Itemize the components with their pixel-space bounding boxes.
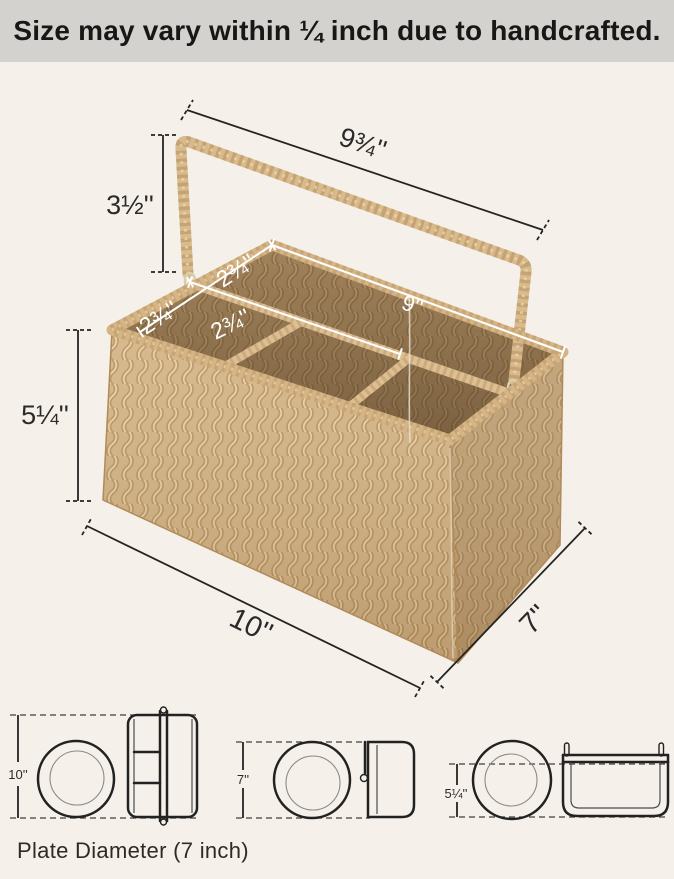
- front-view-sketch: 5¼'': [444, 741, 668, 819]
- dim-basket-height: 5¼'': [21, 330, 91, 501]
- plate-outline: [274, 742, 350, 818]
- product-diagram: 2¾'' 2¾'' 2¾'' 9'' 9¾'' 3½'' 5¼'': [0, 0, 674, 879]
- handle-hook-mark-bottom: [161, 819, 167, 825]
- caddy-top-view-outline: [128, 715, 197, 817]
- seagrass-string: [409, 296, 410, 443]
- dim-handle-width-label: 9¾'': [335, 122, 390, 166]
- folded-handle-bar: [563, 743, 668, 762]
- side-view-sketch: 7'': [236, 742, 414, 818]
- plate-diameter-caption: Plate Diameter (7 inch): [17, 838, 249, 864]
- plate-inner-ring: [50, 751, 104, 805]
- plate-outline: [38, 741, 114, 817]
- side-view-dim-label: 7'': [237, 772, 249, 787]
- size-comparison: 10'' 7'': [8, 707, 668, 825]
- basket-photo: [103, 141, 563, 663]
- dim-basket-depth-label: 7'': [514, 599, 556, 641]
- top-view-sketch: 10'': [8, 707, 200, 825]
- plate-inner-ring: [485, 754, 537, 806]
- top-view-dim-label: 10'': [8, 767, 27, 782]
- handle-hook-mark-top: [161, 707, 167, 713]
- caddy-side-view-outline: [368, 742, 414, 817]
- header-band: Size may vary within ¼ inch due to handc…: [0, 0, 674, 62]
- dim-handle-height-label: 3½'': [106, 190, 154, 220]
- product-dimension-image: { "header": { "notice": "Size may vary w…: [0, 0, 674, 879]
- plate-inner-ring: [286, 756, 340, 810]
- dim-handle-height: 3½'': [106, 135, 176, 272]
- dim-basket-height-label: 5¼'': [21, 400, 69, 430]
- dim-handle-width: 9¾'': [181, 100, 549, 240]
- size-disclaimer-text: Size may vary within ¼ inch due to handc…: [13, 15, 660, 47]
- handle-hook-curl: [361, 775, 368, 782]
- dim-basket-length-label: 10'': [224, 602, 277, 650]
- front-view-dim-label: 5¼'': [444, 786, 467, 801]
